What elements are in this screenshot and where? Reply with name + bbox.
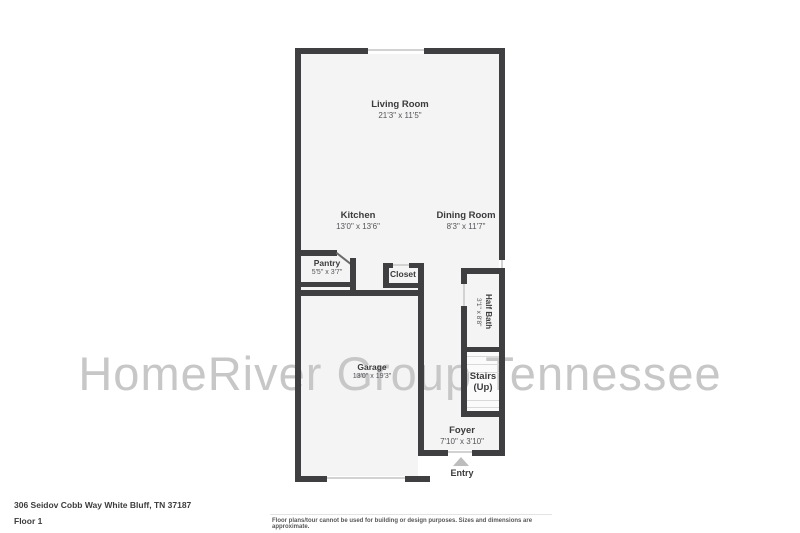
room-label-foyer: Foyer 7'10" x 3'10" <box>440 425 484 446</box>
room-name: Foyer <box>440 425 484 436</box>
wall <box>295 250 337 256</box>
room-dims: 3'1" x 8'8" <box>474 283 483 341</box>
room-dims: 13'0" x 13'6" <box>336 222 380 231</box>
wall <box>461 268 467 284</box>
wall <box>461 306 467 417</box>
entry-arrow-icon <box>453 457 469 466</box>
closet-door-line <box>393 264 409 266</box>
room-dims: 8'3" x 11'7" <box>436 222 495 231</box>
stair-tread-line <box>467 407 499 408</box>
room-label-closet: Closet <box>390 269 416 279</box>
wall <box>383 263 393 268</box>
footer-divider <box>270 514 552 515</box>
wall <box>499 272 505 456</box>
room-dims: 5'5" x 3'7" <box>312 269 343 277</box>
room-label-kitchen: Kitchen 13'0" x 13'6" <box>336 210 380 231</box>
wall <box>418 263 424 456</box>
room-label-dining-room: Dining Room 8'3" x 11'7" <box>436 210 495 231</box>
wall <box>461 411 505 417</box>
disclaimer-text: Floor plans/tour cannot be used for buil… <box>272 518 552 530</box>
room-name: Kitchen <box>336 210 380 221</box>
room-name: Pantry <box>312 258 343 268</box>
room-sub: (Up) <box>470 382 496 393</box>
half-bath-door-line <box>463 284 465 306</box>
wall <box>461 268 505 274</box>
floor-label: Floor 1 <box>14 516 42 526</box>
room-dims: 7'10" x 3'10" <box>440 437 484 446</box>
room-label-garage: Garage 13'0" x 19'3" <box>353 362 391 381</box>
stair-tread-line <box>467 364 499 365</box>
wall <box>461 347 505 352</box>
room-label-pantry: Pantry 5'5" x 3'7" <box>312 258 343 277</box>
wall <box>295 290 418 296</box>
wall <box>405 476 430 482</box>
wall <box>295 48 368 54</box>
room-name: Stairs <box>470 371 496 382</box>
wall <box>499 48 505 260</box>
wall <box>295 282 356 287</box>
room-dims: 21'3" x 11'5" <box>371 111 429 120</box>
room-name: Half Bath <box>483 283 493 341</box>
address-text: 306 Seidov Cobb Way White Bluff, TN 3718… <box>14 500 191 510</box>
room-label-living-room: Living Room 21'3" x 11'5" <box>371 99 429 120</box>
stair-tread-line <box>467 356 499 357</box>
room-dims: 13'0" x 19'3" <box>353 373 391 381</box>
room-name: Dining Room <box>436 210 495 221</box>
watermark-text: HomeRiver Group Tennessee <box>78 346 721 401</box>
floor-plan-canvas: HomeRiver Group Tennessee Living Room 21… <box>0 0 800 533</box>
room-name: Closet <box>390 269 416 279</box>
garage-door-line <box>327 477 405 479</box>
entry-door-line <box>448 451 472 453</box>
wall <box>424 450 448 456</box>
room-name: Living Room <box>371 99 429 110</box>
room-name: Garage <box>353 362 391 372</box>
room-label-stairs: Stairs (Up) <box>470 371 496 393</box>
entry-label: Entry <box>450 468 473 478</box>
room-label-half-bath: Half Bath 3'1" x 8'8" <box>474 283 493 341</box>
stair-tread-line <box>467 400 499 401</box>
wall <box>472 450 505 456</box>
wall <box>295 48 301 482</box>
wall <box>424 48 505 54</box>
window-line <box>368 49 424 51</box>
wall <box>295 476 327 482</box>
